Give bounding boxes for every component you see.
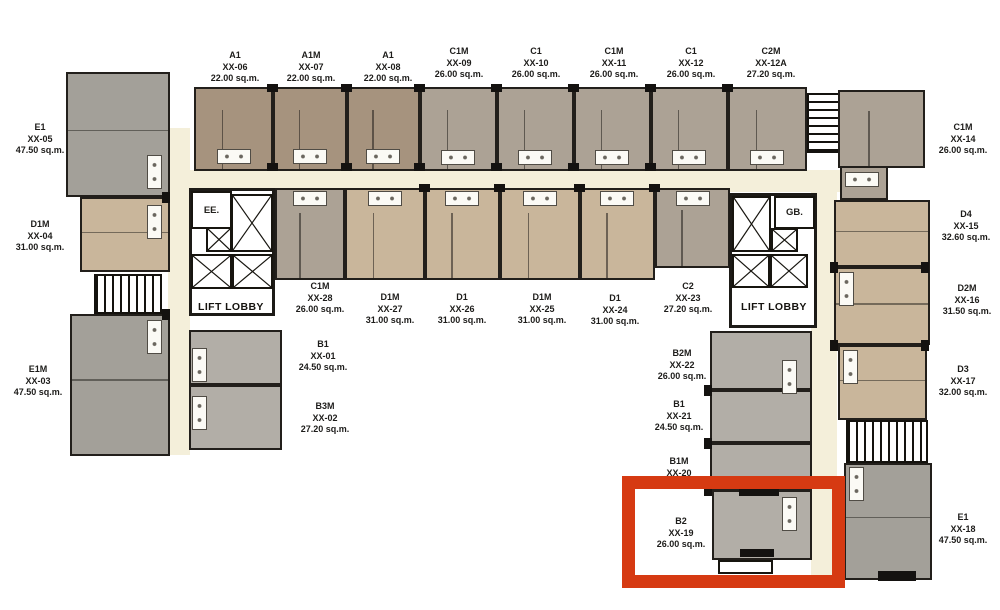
unit-type: D4 <box>960 209 972 221</box>
unit-number: XX-21 <box>666 411 691 423</box>
unit-shape-xx-14 <box>838 90 925 168</box>
column-block <box>830 340 838 351</box>
unit-label-xx-28: C1MXX-2826.00 sq.m. <box>288 281 352 316</box>
bathroom-pod <box>192 348 207 382</box>
unit-type: B1 <box>673 399 685 411</box>
column-block <box>649 184 660 192</box>
elevator-shaft <box>771 228 798 252</box>
unit-area: 31.00 sq.m. <box>518 315 567 327</box>
unit-number: XX-22 <box>669 360 694 372</box>
column-block <box>414 163 425 171</box>
column-block <box>722 84 733 92</box>
unit-number: XX-03 <box>25 376 50 388</box>
unit-type: C1 <box>685 46 697 58</box>
unit-type: E1 <box>957 512 968 524</box>
unit-type: A1M <box>301 50 320 62</box>
unit-label-xx-16: D2MXX-1631.50 sq.m. <box>935 283 999 318</box>
bathroom-pod <box>600 191 634 206</box>
unit-area: 26.00 sq.m. <box>658 371 707 383</box>
unit-type: D1M <box>380 292 399 304</box>
unit-label-xx-09: C1MXX-0926.00 sq.m. <box>427 46 491 81</box>
bathroom-pod <box>366 149 400 164</box>
unit-type: B3M <box>315 401 334 413</box>
unit-type: E1M <box>29 364 48 376</box>
column-block <box>491 84 502 92</box>
unit-label-xx-24: D1XX-2431.00 sq.m. <box>583 293 647 328</box>
unit-type: D1M <box>30 219 49 231</box>
elevator-shaft <box>770 254 808 288</box>
column-block <box>341 84 352 92</box>
unit-area: 31.00 sq.m. <box>591 316 640 328</box>
unit-area: 26.00 sq.m. <box>939 145 988 157</box>
unit-label-xx-18: E1XX-1847.50 sq.m. <box>931 512 995 547</box>
unit-type: C2 <box>682 281 694 293</box>
unit-type: D1M <box>532 292 551 304</box>
unit-number: XX-04 <box>27 231 52 243</box>
unit-label-xx-17: D3XX-1732.00 sq.m. <box>931 364 995 399</box>
unit-label-xx-10: C1XX-1026.00 sq.m. <box>504 46 568 81</box>
column-block <box>568 84 579 92</box>
unit-label-xx-06: A1XX-0622.00 sq.m. <box>203 50 267 85</box>
elevator-shaft <box>206 227 232 252</box>
bathroom-pod <box>147 205 162 239</box>
unit-area: 31.00 sq.m. <box>366 315 415 327</box>
unit-number: XX-11 <box>602 58 627 70</box>
unit-label-xx-23: C2XX-2327.20 sq.m. <box>656 281 720 316</box>
unit-area: 31.00 sq.m. <box>438 315 487 327</box>
unit-area: 22.00 sq.m. <box>287 73 336 85</box>
bathroom-pod <box>445 191 479 206</box>
column-block <box>414 84 425 92</box>
unit-type: A1 <box>382 50 394 62</box>
floor-plan: EE. LIFT LOBBY GB. LIFT LOBBY <box>0 0 1000 610</box>
column-block <box>162 309 170 320</box>
elevator-shaft <box>732 196 771 252</box>
column-block <box>267 163 278 171</box>
unit-label-xx-03: E1MXX-0347.50 sq.m. <box>6 364 70 399</box>
bathroom-pod <box>523 191 557 206</box>
unit-type: C1 <box>530 46 542 58</box>
column-block <box>645 84 656 92</box>
unit-area: 32.60 sq.m. <box>942 232 991 244</box>
column-block <box>162 192 170 203</box>
bathroom-pod <box>518 150 552 165</box>
bathroom-pod <box>750 150 784 165</box>
staircase-right <box>846 420 928 463</box>
bathroom-pod <box>672 150 706 165</box>
unit-area: 47.50 sq.m. <box>16 145 65 157</box>
elevator-shaft <box>732 254 770 288</box>
staircase-left <box>94 274 162 314</box>
bathroom-pod <box>147 155 162 189</box>
unit-area: 22.00 sq.m. <box>364 73 413 85</box>
bathroom-pod <box>147 320 162 354</box>
unit-area: 27.20 sq.m. <box>664 304 713 316</box>
garbage-room: GB. <box>774 196 815 229</box>
unit-number: XX-08 <box>375 62 400 74</box>
column-block <box>568 163 579 171</box>
unit-number: XX-01 <box>310 351 335 363</box>
unit-type: C1M <box>449 46 468 58</box>
column-block <box>921 340 929 351</box>
column-block <box>921 262 929 273</box>
unit-area: 26.00 sq.m. <box>435 69 484 81</box>
unit-area: 22.00 sq.m. <box>211 73 260 85</box>
electrical-room: EE. <box>191 191 232 229</box>
bathroom-pod <box>843 350 858 384</box>
column-block <box>494 184 505 192</box>
unit-type: D3 <box>957 364 969 376</box>
elevator-shaft <box>231 194 273 252</box>
bathroom-pod <box>849 467 864 501</box>
unit-label-xx-25: D1MXX-2531.00 sq.m. <box>510 292 574 327</box>
bathroom-pod <box>441 150 475 165</box>
unit-shape-xx-15 <box>834 200 930 267</box>
bathroom-pod <box>845 172 879 187</box>
elevator-shaft <box>191 254 232 289</box>
column-block <box>491 163 502 171</box>
unit-label-xx-26: D1XX-2631.00 sq.m. <box>430 292 494 327</box>
unit-label-xx-12a: C2MXX-12A27.20 sq.m. <box>739 46 803 81</box>
unit-number: XX-12 <box>678 58 703 70</box>
column-block <box>574 184 585 192</box>
unit-number: XX-09 <box>446 58 471 70</box>
unit-area: 26.00 sq.m. <box>512 69 561 81</box>
unit-area: 26.00 sq.m. <box>296 304 345 316</box>
bathroom-pod <box>595 150 629 165</box>
unit-area: 26.00 sq.m. <box>667 69 716 81</box>
column-block <box>419 184 430 192</box>
unit-label-xx-15: D4XX-1532.60 sq.m. <box>934 209 998 244</box>
unit-number: XX-24 <box>602 305 627 317</box>
bathroom-pod <box>782 360 797 394</box>
unit-area: 26.00 sq.m. <box>590 69 639 81</box>
bathroom-pod <box>368 191 402 206</box>
unit-type: B1M <box>669 456 688 468</box>
unit-area: 31.50 sq.m. <box>943 306 992 318</box>
unit-label-xx-11: C1MXX-1126.00 sq.m. <box>582 46 646 81</box>
unit-number: XX-23 <box>675 293 700 305</box>
unit-shape-xx-21 <box>710 390 812 443</box>
corridor-vertical-left <box>168 128 190 455</box>
unit-number: XX-07 <box>298 62 323 74</box>
unit-number: XX-12A <box>755 58 787 70</box>
column-block <box>645 163 656 171</box>
unit-label-xx-05: E1XX-0547.50 sq.m. <box>8 122 72 157</box>
bathroom-pod <box>676 191 710 206</box>
column-block <box>704 438 712 449</box>
unit-number: XX-16 <box>954 295 979 307</box>
unit-area: 24.50 sq.m. <box>299 362 348 374</box>
unit-type: B1 <box>317 339 329 351</box>
unit-number: XX-27 <box>377 304 402 316</box>
unit-label-xx-08: A1XX-0822.00 sq.m. <box>356 50 420 85</box>
unit-label-xx-07: A1MXX-0722.00 sq.m. <box>279 50 343 85</box>
unit-label-xx-01: B1XX-0124.50 sq.m. <box>291 339 355 374</box>
unit-label-xx-21: B1XX-2124.50 sq.m. <box>647 399 711 434</box>
unit-type: A1 <box>229 50 241 62</box>
unit-type: C1M <box>953 122 972 134</box>
unit-area: 32.00 sq.m. <box>939 387 988 399</box>
unit-type: D1 <box>456 292 468 304</box>
lift-lobby-left-label: LIFT LOBBY <box>198 301 264 313</box>
unit-type: E1 <box>34 122 45 134</box>
unit-type: C1M <box>310 281 329 293</box>
unit-number: XX-15 <box>953 221 978 233</box>
unit-area: 47.50 sq.m. <box>14 387 63 399</box>
bathroom-pod <box>293 191 327 206</box>
unit-number: XX-26 <box>449 304 474 316</box>
unit-area: 47.50 sq.m. <box>939 535 988 547</box>
unit-label-xx-22: B2MXX-2226.00 sq.m. <box>650 348 714 383</box>
column-block <box>267 84 278 92</box>
elevator-shaft <box>232 254 273 289</box>
unit-number: XX-05 <box>27 134 52 146</box>
highlight-box-selected-unit <box>622 476 845 588</box>
column-block <box>830 262 838 273</box>
unit-area: 31.00 sq.m. <box>16 242 65 254</box>
unit-number: XX-17 <box>950 376 975 388</box>
unit-area: 27.20 sq.m. <box>301 424 350 436</box>
unit-label-xx-12: C1XX-1226.00 sq.m. <box>659 46 723 81</box>
unit-label-xx-27: D1MXX-2731.00 sq.m. <box>358 292 422 327</box>
staircase-top <box>807 93 840 153</box>
unit-type: D2M <box>957 283 976 295</box>
unit-type: C1M <box>604 46 623 58</box>
unit-number: XX-25 <box>529 304 554 316</box>
unit-label-xx-04: D1MXX-0431.00 sq.m. <box>8 219 72 254</box>
column-block <box>704 385 712 396</box>
lift-lobby-right-label: LIFT LOBBY <box>741 301 807 313</box>
unit-type: D1 <box>609 293 621 305</box>
unit-number: XX-28 <box>307 293 332 305</box>
bathroom-pod <box>192 396 207 430</box>
bathroom-pod <box>839 272 854 306</box>
unit-number: XX-10 <box>523 58 548 70</box>
unit-number: XX-02 <box>312 413 337 425</box>
column-block <box>878 571 916 581</box>
unit-type: B2M <box>672 348 691 360</box>
unit-number: XX-18 <box>950 524 975 536</box>
unit-area: 24.50 sq.m. <box>655 422 704 434</box>
unit-label-xx-14: C1MXX-1426.00 sq.m. <box>931 122 995 157</box>
unit-number: XX-14 <box>950 134 975 146</box>
column-block <box>341 163 352 171</box>
bathroom-pod <box>217 149 251 164</box>
unit-type: C2M <box>761 46 780 58</box>
bathroom-pod <box>293 149 327 164</box>
unit-label-xx-02: B3MXX-0227.20 sq.m. <box>293 401 357 436</box>
unit-number: XX-06 <box>222 62 247 74</box>
unit-area: 27.20 sq.m. <box>747 69 796 81</box>
